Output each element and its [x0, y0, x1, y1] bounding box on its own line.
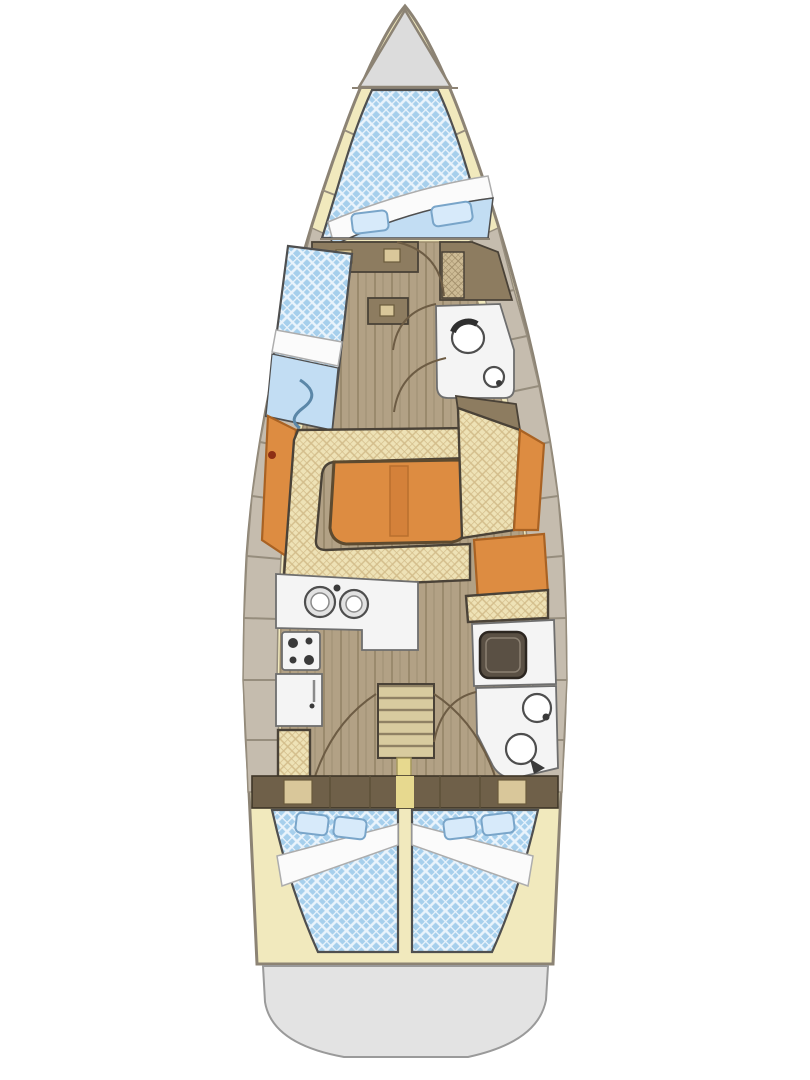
burner-4 [304, 655, 314, 665]
anchor-locker [359, 10, 451, 87]
burner-2 [306, 638, 313, 645]
fridge-latch [310, 704, 315, 709]
nav-station [466, 590, 556, 686]
galley-faucet [334, 585, 341, 592]
forward-dresser-knob [380, 305, 394, 316]
salon-table-leaf [390, 466, 408, 536]
aft-locker-port [284, 780, 312, 804]
v-berth-pillow-port [351, 210, 389, 234]
stove [282, 632, 320, 670]
galley-sink-left-bowl [311, 593, 329, 611]
floor-plan-page [0, 0, 810, 1080]
backrest-dot [268, 451, 276, 459]
aft-bed-starboard-pillow-2 [481, 812, 515, 836]
hanging-locker [442, 252, 464, 298]
companionway-steps [378, 684, 434, 758]
companionway-opening [396, 776, 414, 808]
floor-plan-svg [0, 0, 810, 1080]
aft-bed-starboard-pillow-1 [443, 816, 477, 840]
aft-bed-port-pillow-1 [295, 812, 329, 836]
forward-head [436, 304, 514, 398]
aft-bulkhead [252, 776, 558, 808]
toilet-aft [506, 734, 536, 764]
nav-seat-cushion [466, 590, 548, 622]
bow-anchor-locker [352, 10, 458, 88]
burner-1 [288, 638, 298, 648]
forward-cabinet-knob-2 [384, 249, 400, 262]
settee-backrest-starboard [514, 430, 544, 530]
basin-aft-drain [543, 714, 550, 721]
burner-3 [290, 657, 297, 664]
chart-table [480, 632, 526, 678]
port-berth-blanket [266, 354, 338, 430]
aft-locker-starboard [498, 780, 526, 804]
transom [257, 964, 553, 1057]
settee-starboard [458, 408, 520, 538]
basin-forward-drain [496, 380, 502, 386]
galley-sink-right-bowl [346, 596, 362, 612]
transom-platform [263, 966, 548, 1057]
aft-bed-port-pillow-2 [333, 816, 367, 840]
